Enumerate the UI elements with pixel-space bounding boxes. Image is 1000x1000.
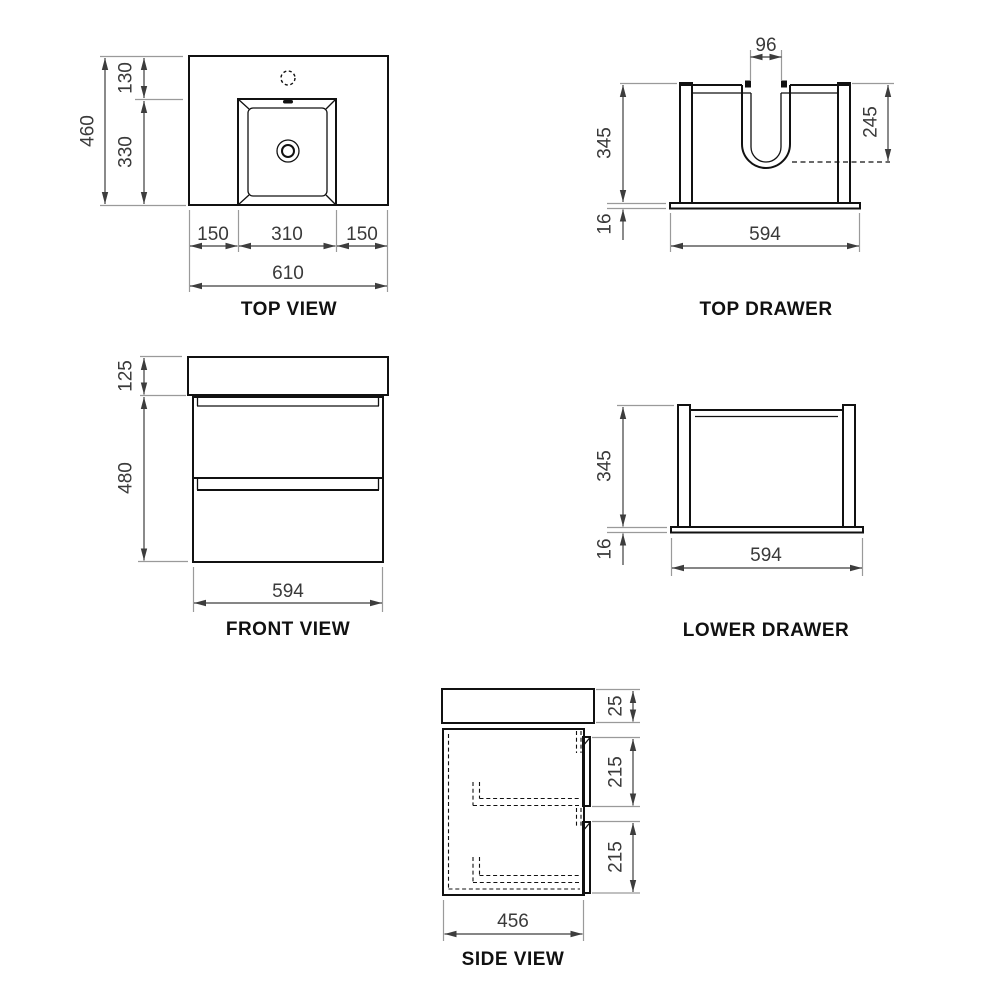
dim-base-height: 16 [595,213,616,234]
dim-lower-front-height: 215 [606,841,627,873]
dim-base-height: 16 [595,538,616,559]
cabinet-front [193,397,383,562]
side-panel-left [680,83,692,203]
dim-right-offset: 150 [346,224,378,245]
top-view-dimensions: 460 130 330 150 310 150 610 [78,57,388,293]
top-view: 460 130 330 150 310 150 610 TOP VIEW [78,56,389,320]
benchtop-front [188,357,388,395]
basin-chamfer-tr [326,99,336,109]
cutout-tab-left [745,81,751,88]
lower-drawer-geometry [671,405,863,533]
top-drawer-geometry [670,81,890,209]
plumbing-cutout-inner [751,93,781,162]
basin-chamfer-br [326,195,336,205]
dim-cutout-width: 96 [755,35,776,56]
side-panel-left [678,405,690,527]
technical-drawing-canvas: 460 130 330 150 310 150 610 TOP VIEW [0,0,1000,1000]
dim-cabinet-height: 480 [116,462,137,494]
drawer-base-panel [670,203,860,209]
plumbing-cutout-outer [742,85,790,168]
dim-depth: 456 [497,911,529,932]
front-view: 125 480 594 FRONT VIEW [116,357,389,641]
overflow-slot [283,100,293,104]
dim-upper-front-height: 215 [606,756,627,788]
countertop-outline [189,56,388,205]
dim-overall-depth: 460 [78,115,99,147]
drain-outer-ring [277,140,299,162]
cutout-tab-right [781,81,787,88]
side-panel-right [843,405,855,527]
lower-drawer-dimensions: 345 16 594 [595,406,863,577]
front-view-title: FRONT VIEW [226,619,350,640]
side-view-geometry [442,689,594,895]
side-view: 25 215 215 456 SIDE VIEW [442,689,640,970]
dim-cutout-depth: 245 [861,106,882,138]
dim-box-width: 594 [749,224,781,245]
dim-basin-width: 310 [271,224,303,245]
top-drawer-view: 96 345 16 594 245 TOP DRAWER [595,35,895,320]
front-view-geometry [188,357,388,562]
dim-box-height: 345 [595,450,616,482]
dim-left-offset: 150 [197,224,229,245]
cabinet-side [443,729,584,895]
basin-outer-rim [238,99,336,205]
basin-chamfer-tl [238,99,249,109]
side-view-dimensions: 25 215 215 456 [444,690,641,942]
drawing-sheet: 460 130 330 150 310 150 610 TOP VIEW [0,0,1000,1000]
basin-inner-bowl [248,108,327,196]
dim-basin-depth: 330 [116,136,137,168]
dim-overall-width: 610 [272,263,304,284]
top-view-geometry [189,56,388,205]
dim-tap-to-basin: 130 [116,62,137,94]
benchtop-side [442,689,594,723]
dim-box-height: 345 [595,127,616,159]
tap-hole-icon [281,71,295,85]
dim-basin-height: 125 [116,360,137,392]
drain-icon [282,145,294,157]
lower-drawer-title: LOWER DRAWER [683,620,849,641]
lower-drawer-view: 345 16 594 LOWER DRAWER [595,405,864,641]
top-view-title: TOP VIEW [241,299,337,320]
side-view-title: SIDE VIEW [462,949,565,970]
dim-box-width: 594 [750,545,782,566]
dim-cabinet-width: 594 [272,581,304,602]
drawer-base-panel [671,527,863,533]
basin-chamfer-bl [238,195,249,205]
side-panel-right [838,83,850,203]
dim-top-thickness: 25 [606,695,627,716]
top-drawer-title: TOP DRAWER [699,299,832,320]
